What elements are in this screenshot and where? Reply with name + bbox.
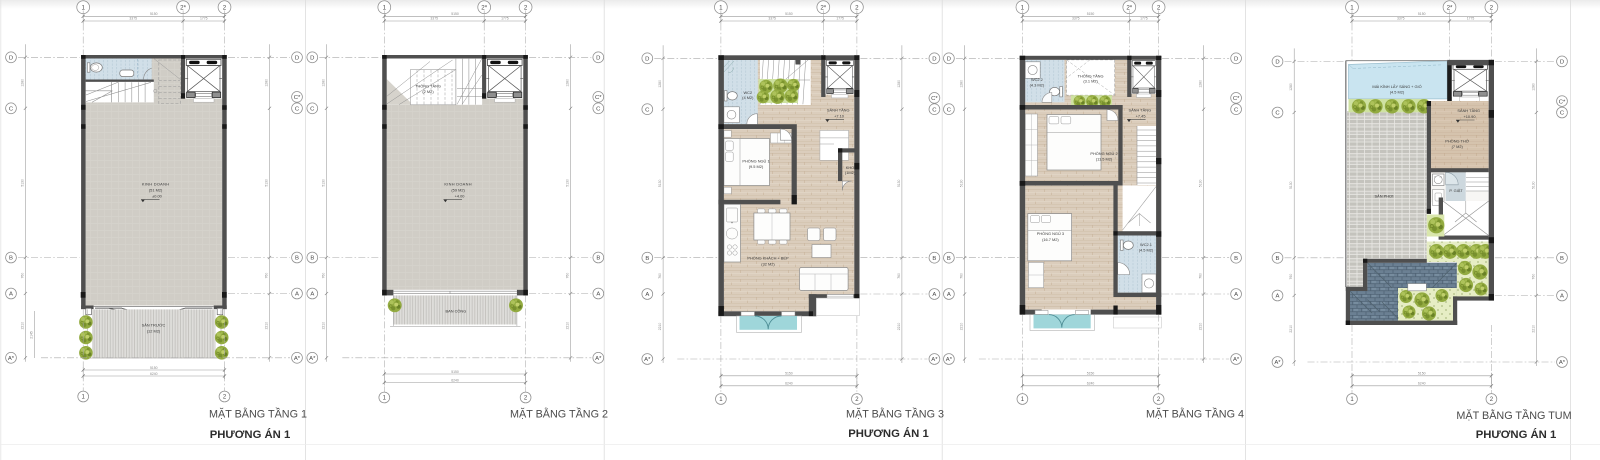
- svg-text:1280: 1280: [897, 80, 901, 88]
- svg-text:(16.7 M2): (16.7 M2): [1042, 237, 1059, 242]
- svg-text:2*: 2*: [1447, 4, 1453, 11]
- svg-text:1775: 1775: [1140, 17, 1148, 21]
- svg-text:A*: A*: [644, 357, 651, 363]
- svg-text:SẢNH TẦNG: SẢNH TẦNG: [1457, 108, 1480, 113]
- svg-text:2: 2: [855, 4, 859, 11]
- svg-text:A: A: [932, 292, 936, 298]
- svg-text:2210: 2210: [897, 323, 901, 331]
- svg-text:+7.45: +7.45: [1136, 113, 1146, 118]
- svg-text:1280: 1280: [1289, 83, 1293, 91]
- svg-text:B: B: [947, 256, 951, 262]
- svg-text:5130: 5130: [1199, 180, 1203, 188]
- svg-text:5130: 5130: [1531, 181, 1535, 189]
- svg-text:(51 M2): (51 M2): [149, 187, 163, 192]
- svg-text:2210: 2210: [1199, 323, 1203, 331]
- svg-text:D: D: [1560, 60, 1564, 66]
- svg-text:5130: 5130: [265, 179, 269, 187]
- svg-text:(1M2): (1M2): [845, 170, 856, 175]
- svg-text:MẶT BẰNG TẦNG 4: MẶT BẰNG TẦNG 4: [1146, 408, 1244, 421]
- svg-text:A*: A*: [946, 357, 953, 363]
- svg-text:1280: 1280: [658, 80, 662, 88]
- svg-text:D: D: [310, 56, 314, 62]
- svg-text:B: B: [596, 256, 600, 262]
- svg-text:B: B: [1560, 256, 1564, 262]
- svg-text:A: A: [947, 292, 951, 298]
- svg-text:D: D: [1234, 57, 1238, 63]
- svg-text:1280: 1280: [265, 79, 269, 87]
- svg-text:A: A: [1276, 294, 1280, 300]
- svg-text:B: B: [1234, 256, 1238, 262]
- svg-text:2: 2: [1490, 4, 1494, 11]
- svg-text:5130: 5130: [897, 180, 901, 188]
- svg-text:2210: 2210: [566, 322, 570, 330]
- svg-text:2210: 2210: [322, 322, 326, 330]
- svg-text:760: 760: [1289, 274, 1293, 280]
- svg-text:SÂN TRƯỚC: SÂN TRƯỚC: [142, 323, 166, 328]
- svg-text:C: C: [1560, 111, 1565, 117]
- svg-text:5150: 5150: [451, 12, 459, 16]
- svg-text:5150: 5150: [1087, 372, 1095, 376]
- svg-text:2145: 2145: [30, 331, 34, 339]
- svg-text:5130: 5130: [960, 180, 964, 188]
- svg-text:D: D: [645, 57, 649, 63]
- svg-text:5130: 5130: [566, 179, 570, 187]
- svg-text:A*: A*: [1233, 357, 1240, 363]
- svg-text:5150: 5150: [1418, 372, 1426, 376]
- svg-text:1280: 1280: [322, 79, 326, 87]
- svg-text:B: B: [310, 256, 314, 262]
- svg-text:C: C: [645, 107, 650, 113]
- svg-text:SẢNH TẦNG: SẢNH TẦNG: [827, 108, 850, 113]
- svg-text:A: A: [1560, 294, 1564, 300]
- svg-text:C*: C*: [1559, 99, 1566, 105]
- svg-text:1280: 1280: [1531, 83, 1535, 91]
- svg-text:MẶT BẰNG TẦNG 2: MẶT BẰNG TẦNG 2: [510, 408, 608, 421]
- svg-text:760: 760: [566, 273, 570, 279]
- svg-text:1775: 1775: [1467, 17, 1475, 21]
- svg-text:5150: 5150: [451, 370, 459, 374]
- svg-text:5150: 5150: [1418, 12, 1426, 16]
- svg-text:C*: C*: [931, 96, 938, 102]
- svg-text:D: D: [295, 56, 299, 62]
- svg-text:D: D: [1275, 60, 1279, 66]
- svg-text:(7 M2): (7 M2): [1452, 144, 1464, 149]
- svg-text:PHÒNG NGỦ 3: PHÒNG NGỦ 3: [1037, 231, 1064, 236]
- svg-text:5150: 5150: [1087, 12, 1095, 16]
- svg-text:5150: 5150: [785, 372, 793, 376]
- svg-text:BAN CÔNG: BAN CÔNG: [446, 308, 467, 313]
- svg-text:D: D: [9, 56, 13, 62]
- svg-text:2*: 2*: [481, 4, 487, 11]
- svg-text:C: C: [596, 107, 601, 113]
- svg-text:PHÒNG NGỦ 1: PHÒNG NGỦ 1: [742, 158, 769, 163]
- svg-text:±0.00: ±0.00: [152, 194, 163, 199]
- svg-text:PHÒNG NGỦ 2: PHÒNG NGỦ 2: [1090, 151, 1117, 156]
- svg-text:C: C: [947, 107, 952, 113]
- svg-text:760: 760: [897, 273, 901, 279]
- svg-text:2: 2: [524, 4, 528, 11]
- svg-text:6240: 6240: [1087, 382, 1095, 386]
- svg-text:A*: A*: [931, 357, 938, 363]
- svg-text:PHÒNG KHÁCH + BẾP: PHÒNG KHÁCH + BẾP: [747, 256, 789, 261]
- svg-text:A*: A*: [8, 356, 15, 362]
- svg-text:2210: 2210: [658, 323, 662, 331]
- svg-text:C: C: [310, 107, 315, 113]
- svg-text:A*: A*: [1559, 360, 1566, 366]
- svg-text:B: B: [295, 256, 299, 262]
- svg-text:C: C: [932, 107, 937, 113]
- svg-text:5150: 5150: [150, 366, 158, 370]
- svg-text:1280: 1280: [960, 80, 964, 88]
- svg-text:760: 760: [20, 273, 24, 279]
- svg-text:1280: 1280: [566, 79, 570, 87]
- svg-text:SẢNH TẦNG: SẢNH TẦNG: [1128, 108, 1151, 113]
- svg-text:1775: 1775: [200, 17, 208, 21]
- svg-text:A*: A*: [309, 356, 316, 362]
- svg-text:3375: 3375: [129, 17, 137, 21]
- svg-text:5150: 5150: [785, 12, 793, 16]
- svg-text:A: A: [310, 292, 314, 298]
- svg-text:B: B: [9, 256, 13, 262]
- svg-text:+4.00: +4.00: [455, 194, 466, 199]
- svg-text:C: C: [1275, 111, 1280, 117]
- svg-text:2210: 2210: [1289, 325, 1293, 333]
- svg-text:C: C: [1234, 107, 1239, 113]
- svg-text:D: D: [947, 57, 951, 63]
- svg-text:2: 2: [223, 4, 227, 11]
- svg-text:760: 760: [960, 273, 964, 279]
- svg-text:760: 760: [1531, 274, 1535, 280]
- svg-text:5150: 5150: [150, 12, 158, 16]
- svg-text:+7.10: +7.10: [834, 113, 845, 118]
- svg-text:3375: 3375: [430, 17, 438, 21]
- svg-text:A: A: [645, 292, 649, 298]
- svg-text:+10.90: +10.90: [1463, 114, 1476, 119]
- svg-text:(4.3 M2): (4.3 M2): [1030, 82, 1045, 87]
- svg-text:(59 M2): (59 M2): [451, 187, 465, 192]
- svg-text:6240: 6240: [150, 372, 158, 376]
- svg-text:6240: 6240: [1418, 382, 1426, 386]
- svg-text:A: A: [596, 292, 600, 298]
- svg-text:2210: 2210: [960, 323, 964, 331]
- svg-text:1: 1: [719, 4, 723, 11]
- svg-text:MẶT BẰNG TẦNG 3: MẶT BẰNG TẦNG 3: [846, 408, 944, 421]
- svg-text:2*: 2*: [820, 4, 826, 11]
- svg-text:B: B: [1276, 256, 1280, 262]
- svg-text:2210: 2210: [265, 322, 269, 330]
- svg-text:3375: 3375: [1072, 17, 1080, 21]
- svg-text:760: 760: [322, 273, 326, 279]
- svg-text:(32 M2): (32 M2): [761, 261, 775, 266]
- svg-text:2210: 2210: [20, 322, 24, 330]
- svg-text:1: 1: [81, 4, 85, 11]
- svg-text:760: 760: [265, 273, 269, 279]
- svg-text:(4.5 M2): (4.5 M2): [1139, 248, 1154, 253]
- svg-text:3375: 3375: [768, 17, 776, 21]
- svg-text:P. GIẶT: P. GIẶT: [1449, 188, 1463, 193]
- svg-text:A*: A*: [1274, 360, 1281, 366]
- svg-text:1775: 1775: [836, 17, 844, 21]
- svg-text:(3.1 M2): (3.1 M2): [1083, 79, 1098, 84]
- svg-text:B: B: [645, 256, 649, 262]
- svg-text:MẶT BẰNG TẦNG TUM: MẶT BẰNG TẦNG TUM: [1456, 409, 1571, 422]
- svg-text:6240: 6240: [785, 382, 793, 386]
- svg-text:SÂN PHƠI: SÂN PHƠI: [1375, 193, 1394, 198]
- svg-text:PHƯƠNG ÁN 1: PHƯƠNG ÁN 1: [210, 428, 291, 441]
- svg-text:MÁI KÍNH LẤY SÁNG + GIÓ: MÁI KÍNH LẤY SÁNG + GIÓ: [1372, 84, 1421, 89]
- svg-text:760: 760: [658, 273, 662, 279]
- svg-text:C: C: [295, 107, 300, 113]
- svg-text:C*: C*: [595, 95, 602, 101]
- svg-text:A*: A*: [595, 356, 602, 362]
- svg-text:1280: 1280: [20, 79, 24, 87]
- svg-text:PHÒNG THỜ: PHÒNG THỜ: [1445, 138, 1469, 143]
- svg-text:5130: 5130: [1289, 181, 1293, 189]
- svg-text:1: 1: [1021, 4, 1025, 11]
- svg-text:2210: 2210: [1531, 325, 1535, 333]
- svg-text:C: C: [9, 107, 14, 113]
- svg-text:760: 760: [1199, 273, 1203, 279]
- svg-text:PHƯƠNG ÁN 1: PHƯƠNG ÁN 1: [1476, 428, 1557, 441]
- svg-text:2*: 2*: [1126, 4, 1132, 11]
- svg-text:(4 M2): (4 M2): [742, 95, 754, 100]
- svg-text:C*: C*: [1233, 96, 1240, 102]
- svg-text:A: A: [1234, 292, 1238, 298]
- svg-text:5130: 5130: [658, 180, 662, 188]
- svg-text:A*: A*: [294, 356, 301, 362]
- svg-text:KINH DOANH: KINH DOANH: [444, 181, 471, 186]
- svg-text:(12 M2): (12 M2): [147, 329, 161, 334]
- svg-text:1775: 1775: [501, 17, 509, 21]
- svg-text:KINH DOANH: KINH DOANH: [142, 181, 169, 186]
- svg-text:3375: 3375: [1397, 17, 1405, 21]
- svg-text:B: B: [932, 256, 936, 262]
- svg-text:D: D: [932, 57, 936, 63]
- svg-text:C*: C*: [294, 95, 301, 101]
- svg-text:5130: 5130: [322, 179, 326, 187]
- svg-text:MẶT BẰNG TẦNG 1: MẶT BẰNG TẦNG 1: [209, 408, 307, 421]
- svg-text:PHƯƠNG ÁN 1: PHƯƠNG ÁN 1: [848, 427, 929, 440]
- svg-text:2: 2: [1157, 4, 1161, 11]
- svg-text:(9.5 M2): (9.5 M2): [749, 164, 764, 169]
- svg-text:D: D: [596, 56, 600, 62]
- svg-text:THÔNG TẦNG: THÔNG TẦNG: [415, 83, 441, 88]
- svg-text:A: A: [9, 292, 13, 298]
- svg-text:A: A: [295, 292, 299, 298]
- svg-text:2*: 2*: [180, 4, 186, 11]
- svg-text:1280: 1280: [1199, 80, 1203, 88]
- svg-text:(11.5 M2): (11.5 M2): [1096, 157, 1113, 162]
- svg-text:(2 M2): (2 M2): [422, 89, 434, 94]
- svg-text:1: 1: [383, 4, 387, 11]
- svg-text:(4.5 M2): (4.5 M2): [1390, 89, 1405, 94]
- svg-text:1: 1: [1350, 4, 1354, 11]
- svg-text:WC2.1: WC2.1: [1140, 242, 1152, 247]
- svg-text:5130: 5130: [20, 179, 24, 187]
- svg-text:6240: 6240: [451, 378, 459, 382]
